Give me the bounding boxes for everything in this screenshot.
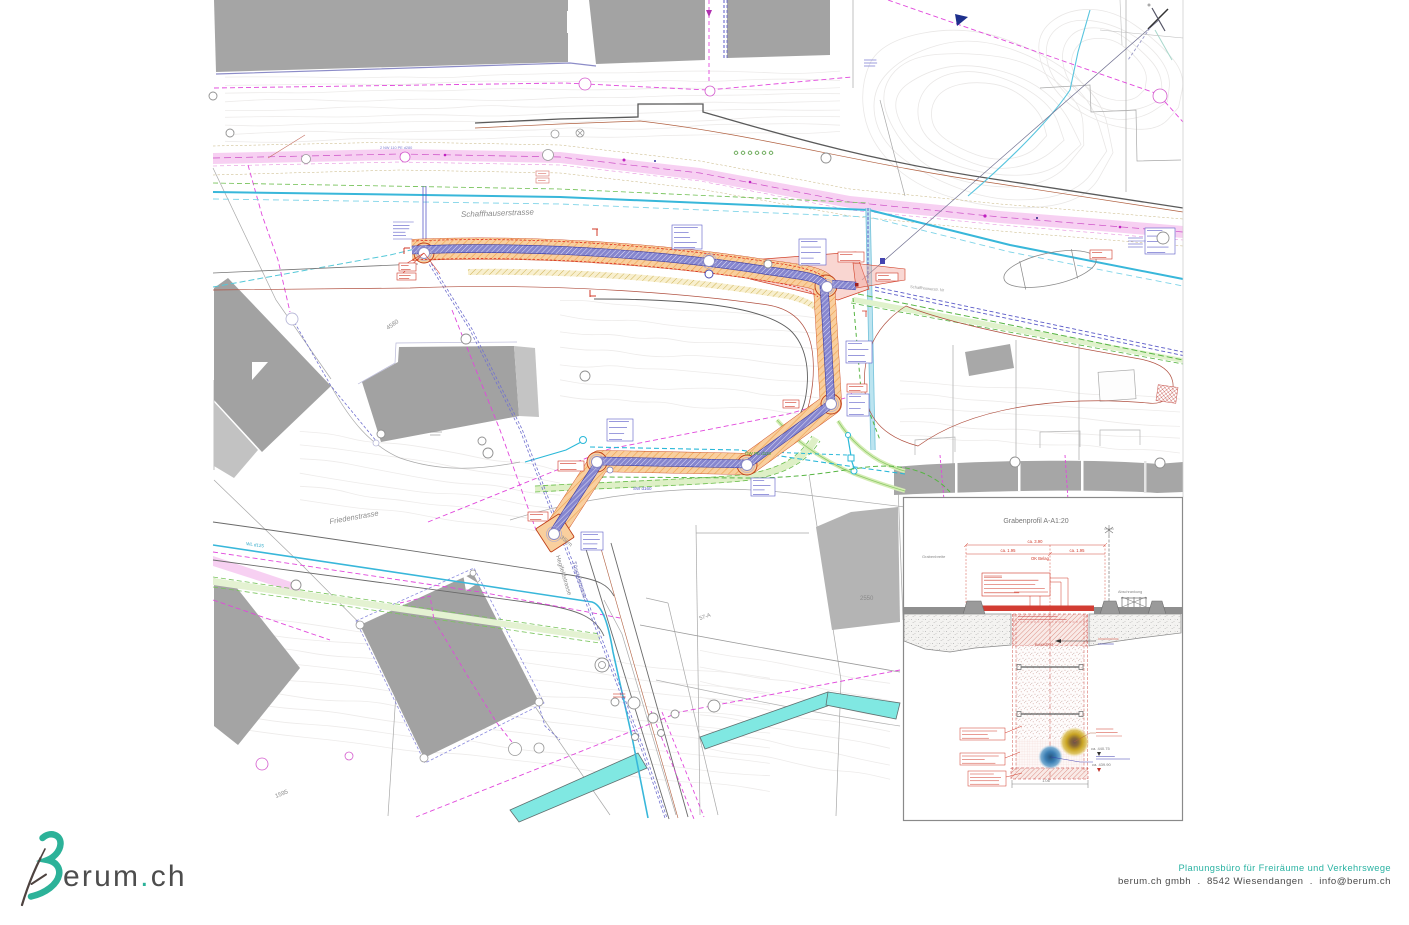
svg-text:57-A: 57-A (699, 613, 712, 622)
svg-text:GW PE d110: GW PE d110 (745, 451, 771, 456)
svg-text:Schaffhauserstr. Nr: Schaffhauserstr. Nr (910, 284, 945, 293)
svg-text:Planungsbüro für Freiräume und: Planungsbüro für Freiräume und Verkehrsw… (1178, 863, 1391, 873)
svg-text:SW d160: SW d160 (633, 486, 652, 491)
svg-text:OK Belag: OK Belag (1031, 556, 1050, 561)
svg-text:ca. 1.95: ca. 1.95 (1070, 548, 1086, 553)
svg-text:1595: 1595 (275, 789, 290, 800)
svg-text:2 NW 110 PE d280: 2 NW 110 PE d280 (380, 146, 412, 150)
svg-text:Schaffhauserstrasse: Schaffhauserstrasse (461, 207, 535, 219)
svg-text:Friedenstrasse: Friedenstrasse (329, 508, 379, 525)
svg-text:Hegifeldstrasse: Hegifeldstrasse (554, 555, 572, 597)
svg-text:WL d125: WL d125 (246, 541, 265, 549)
svg-text:Tösstalstrasse: Tösstalstrasse (570, 561, 587, 600)
svg-text:2550: 2550 (860, 596, 874, 602)
svg-text:ca. 1.95: ca. 1.95 (1001, 548, 1017, 553)
svg-text:berum.ch gmbh . 8542 Wiesend: berum.ch gmbh . 8542 Wiesendangen . info… (1118, 876, 1391, 887)
svg-text:4580: 4580 (386, 319, 401, 332)
svg-text:ca. 3.90: ca. 3.90 (1028, 539, 1044, 544)
svg-text:ca. 439.90: ca. 439.90 (1092, 762, 1111, 767)
svg-text:Grabenbreite: Grabenbreite (922, 554, 946, 559)
svg-text:erum.ch: erum.ch (63, 860, 187, 893)
svg-text:Grabenprofil A-A1:20: Grabenprofil A-A1:20 (1003, 518, 1068, 525)
svg-text:Abschrankung: Abschrankung (1118, 590, 1142, 594)
svg-text:1.06: 1.06 (1042, 778, 1051, 783)
svg-text:ca. 440.75: ca. 440.75 (1091, 746, 1110, 751)
